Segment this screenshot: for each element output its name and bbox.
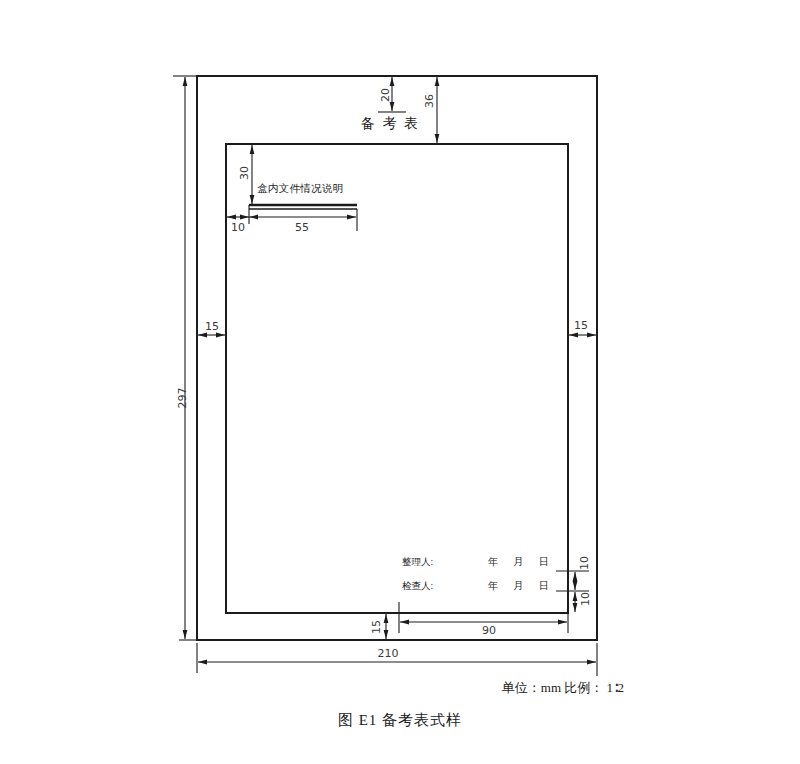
checker-label: 检查人: [402,581,433,591]
label-note-drop: 30 [238,166,251,180]
label-margin-left: 15 [205,320,219,333]
figure-caption: 图 E1 备考表式样 [338,712,462,728]
label-page-width: 210 [378,647,399,660]
label-margin-right: 15 [574,319,588,332]
label-page-height: 297 [176,388,189,409]
label-margin-bottom: 15 [370,620,383,634]
inner-form-rectangle [226,144,568,613]
dimension-arrows [185,77,596,662]
checker-date: 年 月 日 [488,580,556,591]
label-note-indent: 10 [231,221,245,234]
label-margin-top: 36 [423,94,436,108]
form-title: 备 考 表 [361,116,420,131]
box-contents-note: 盒内文件情况说明 [257,182,343,194]
drawing-canvas: 297 36 20 30 10 55 15 15 10 10 90 15 210… [0,0,800,764]
label-note-rule-length: 55 [295,221,309,234]
organizer-date: 年 月 日 [488,556,556,567]
label-row-gap-upper: 10 [578,556,591,570]
unit-scale-note: 单位：mm 比例： 1∶2 [502,680,624,695]
label-footer-rule-length: 90 [482,624,496,637]
footer-texts: 单位：mm 比例： 1∶2 图 E1 备考表式样 [338,680,624,728]
dimension-drawing: 297 36 20 30 10 55 15 15 10 10 90 15 210… [0,0,800,764]
dimension-labels: 297 36 20 30 10 55 15 15 10 10 90 15 210 [176,88,592,660]
label-title-drop: 20 [379,88,392,102]
form-texts: 备 考 表 盒内文件情况说明 整理人: 年 月 日 检查人: 年 月 日 [257,116,556,591]
organizer-label: 整理人: [402,557,433,567]
label-row-gap-lower: 10 [579,592,592,606]
